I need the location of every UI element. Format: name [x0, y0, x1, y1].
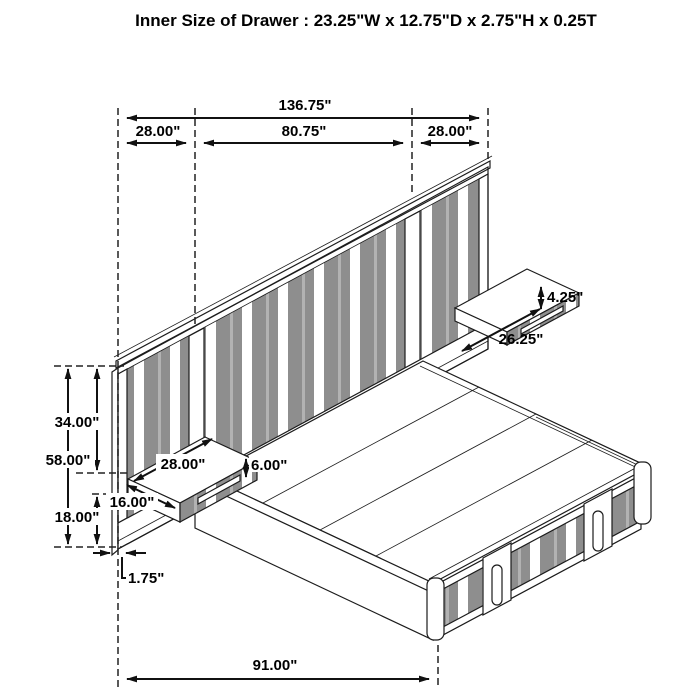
dim-total-width: 136.75" [279, 97, 332, 114]
dim-center-width: 80.75" [282, 123, 327, 140]
dim-shelf-to-floor: 18.00" [55, 509, 100, 526]
bed-corner-post-right [634, 462, 651, 524]
dim-left-shelf-depth: 16.00" [110, 494, 155, 511]
dim-panel-thickness: 1.75" [128, 570, 164, 587]
dim-headboard-height: 58.00" [46, 452, 91, 469]
dim-left-shelf-height: 6.00" [251, 457, 287, 474]
drawer-handle [492, 565, 502, 605]
dim-bed-length: 91.00" [253, 657, 298, 674]
furniture-dimension-diagram: Inner Size of Drawer : 23.25"W x 12.75"D… [0, 0, 700, 700]
drawer-handle [593, 511, 603, 551]
dim-right-shelf-height: 4.25" [547, 289, 583, 306]
bed-corner-post-left [427, 578, 444, 640]
dim-right-wing-width: 28.00" [428, 123, 473, 140]
diagram-canvas: Inner Size of Drawer : 23.25"W x 12.75"D… [0, 0, 700, 700]
dim-left-shelf-width: 28.00" [161, 456, 206, 473]
dim-top-to-shelf: 34.00" [55, 414, 100, 431]
headboard-stile-mid-right [405, 211, 420, 368]
page-title: Inner Size of Drawer : 23.25"W x 12.75"D… [135, 11, 597, 30]
dim-right-shelf-width: 26.25" [499, 331, 544, 348]
dim-left-wing-width: 28.00" [136, 123, 181, 140]
headboard-left-edge [112, 368, 118, 555]
